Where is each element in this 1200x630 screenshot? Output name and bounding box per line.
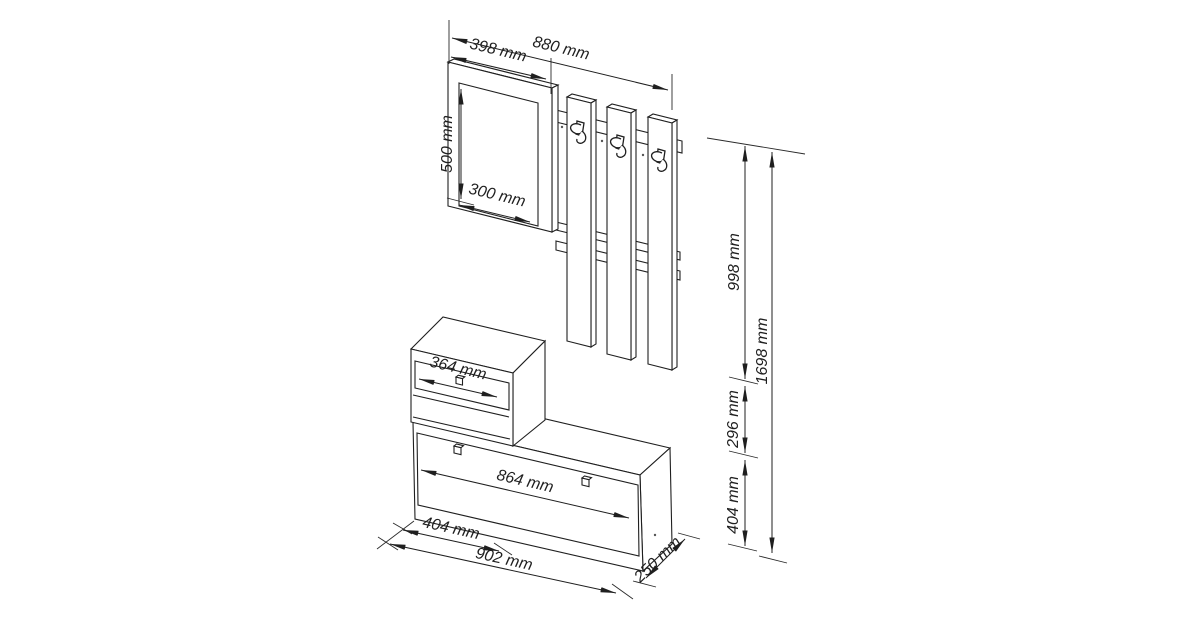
dim-label-rack-height: 998 mm [726, 233, 743, 291]
screw-dot [601, 140, 603, 142]
dim-label-mirror-width: 398 mm [468, 36, 528, 66]
dim-label-mirror-height: 500 mm [439, 115, 456, 173]
cam-dot [654, 534, 656, 536]
dim-label-bench-section: 404 mm [725, 476, 742, 534]
screw-dot [561, 126, 563, 128]
screw-dot [642, 154, 644, 156]
drawing-canvas: 880 mm 398 mm 500 mm 300 mm 998 mm 1698 … [0, 0, 1200, 630]
dim-label-total-height: 1698 mm [754, 318, 771, 385]
furniture-technical-drawing: 880 mm 398 mm 500 mm 300 mm 998 mm 1698 … [0, 0, 1200, 630]
dim-label-cabinet-section: 296 mm [725, 390, 742, 449]
